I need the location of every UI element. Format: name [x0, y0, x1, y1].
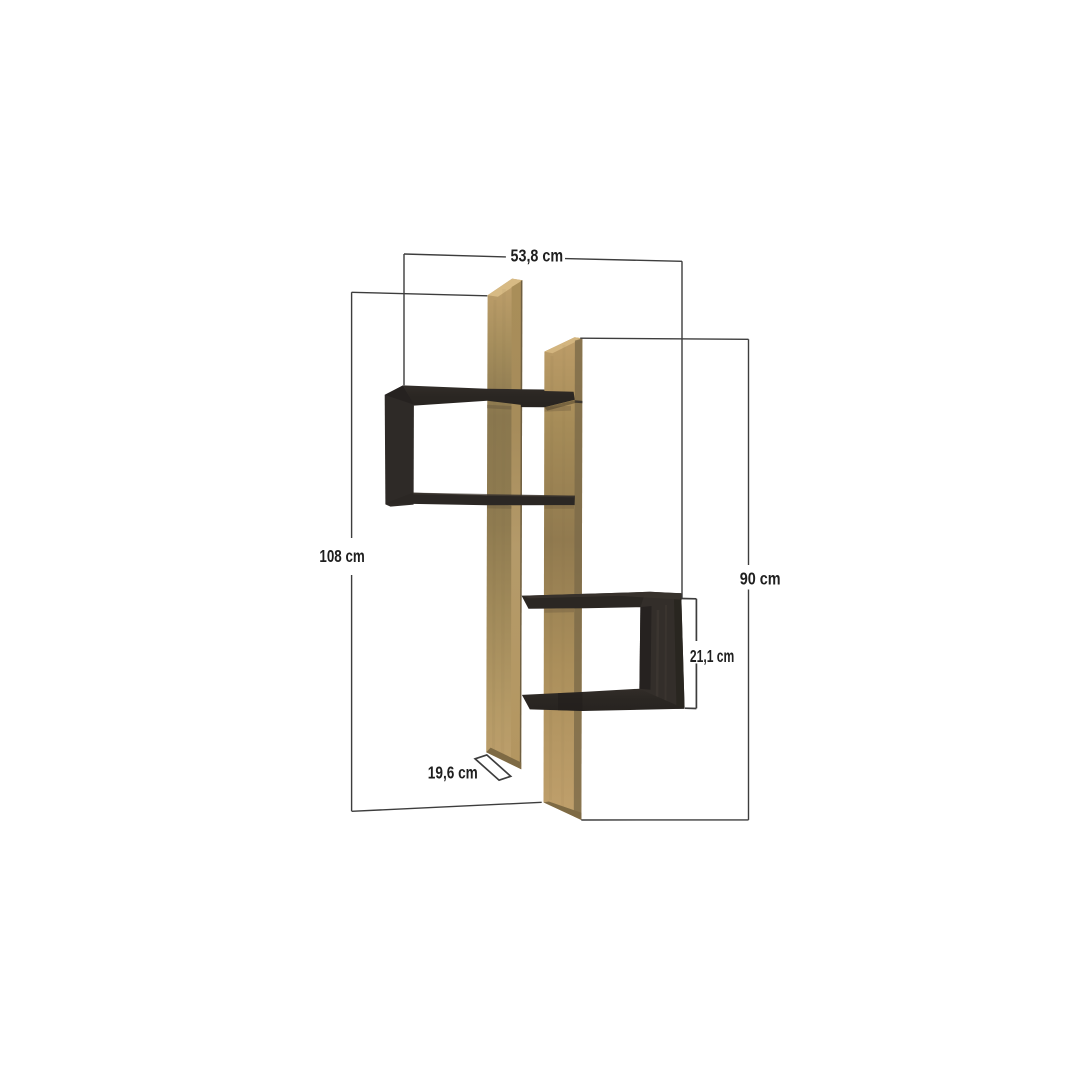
svg-text:21,1 cm: 21,1 cm — [690, 646, 734, 666]
svg-text:90 cm: 90 cm — [740, 568, 781, 588]
svg-text:108 cm: 108 cm — [319, 546, 364, 566]
svg-text:19,6 cm: 19,6 cm — [428, 762, 478, 782]
svg-text:53,8 cm: 53,8 cm — [511, 246, 564, 266]
